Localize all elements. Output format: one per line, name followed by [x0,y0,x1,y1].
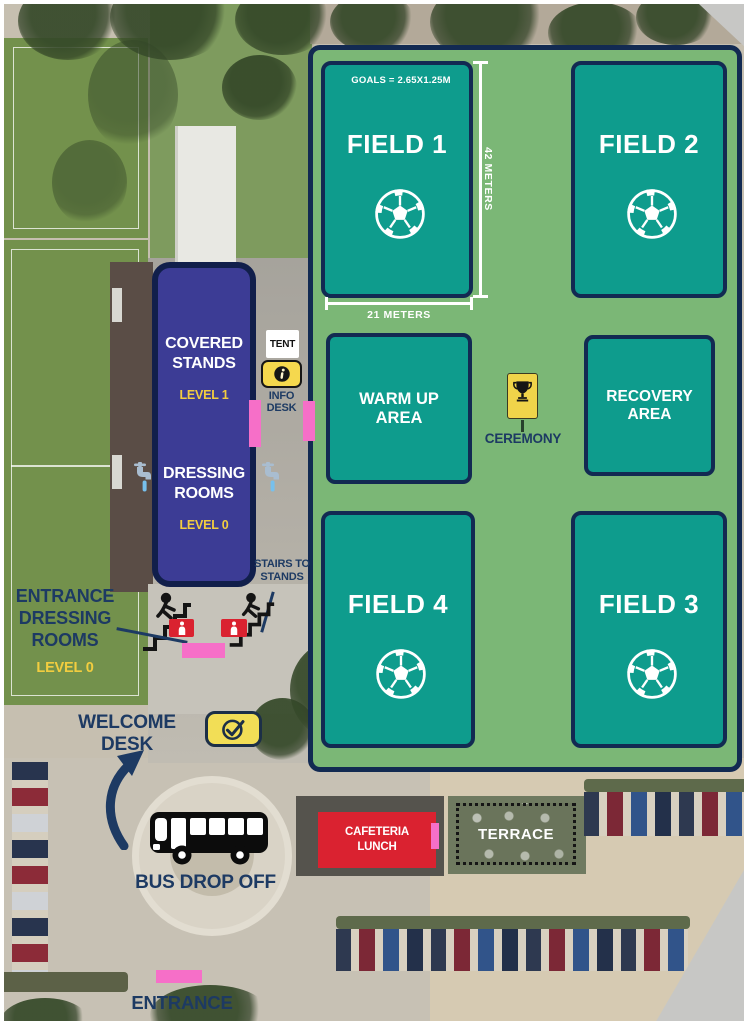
entrance-dressing-rooms-label: ENTRANCE DRESSING ROOMS [10,586,120,652]
hedge-bottom-left [0,972,128,992]
access-marker-entrance [156,970,202,983]
field-3: FIELD 3 [571,511,727,748]
width-dimension-line [325,302,473,305]
check-icon [220,716,248,742]
recovery-area-label: RECOVERY AREA [606,388,692,424]
bus-icon [147,806,272,868]
faucet-icon [256,461,282,495]
trophy-icon [512,379,533,403]
welcome-desk-marker [205,711,262,747]
info-desk-label: INFO DESK [257,390,306,414]
tree-shadow [52,140,127,225]
wc-person-icon [228,621,240,636]
wc-person-icon [176,621,188,636]
width-dimension-tick-right [470,297,473,310]
length-dimension-label: 42 METERS [480,134,494,224]
soccer-ball-icon [625,647,679,701]
venue-map: GOALS = 2.65X1.25M FIELD 1 FIELD 2 FIELD… [0,0,748,1025]
entrance-label: ENTRANCE [128,992,236,1014]
tree-canopy [222,55,297,120]
covered-stands-label: COVERED STANDS [157,334,251,374]
field-1: GOALS = 2.65X1.25M FIELD 1 [321,61,473,298]
goals-dimension-note: GOALS = 2.65X1.25M [335,75,467,86]
tent-label: TENT [270,339,295,350]
bleacher-steps [112,455,122,489]
soccer-ball-icon [373,187,427,241]
tent-marker: TENT [266,330,299,358]
covered-stands-level: LEVEL 1 [157,388,251,402]
field-2-label: FIELD 2 [575,129,723,160]
field-2: FIELD 2 [571,61,727,298]
entrance-dressing-level: LEVEL 0 [10,660,120,676]
length-dimension-tick-top [473,61,488,64]
dressing-rooms-label: DRESSING ROOMS [157,464,251,504]
field-3-label: FIELD 3 [575,589,723,620]
parked-cars-bottom [336,929,688,971]
access-marker-stands [249,400,261,447]
access-marker-fields [303,401,315,441]
soccer-ball-icon [374,647,428,701]
ceremony-label: CEREMONY [478,431,568,446]
field-4: FIELD 4 [321,511,475,748]
terrace-label: TERRACE [478,826,554,843]
stairs-to-stands-label: STAIRS TO STANDS [250,558,314,583]
parked-cars-left [12,762,48,980]
field-1-label: FIELD 1 [325,129,469,160]
warm-up-area-label: WARM UP AREA [359,390,439,428]
wc-marker [169,619,194,637]
bleacher-steps [112,288,122,322]
recovery-area: RECOVERY AREA [584,335,715,476]
hedge-right [584,779,748,792]
dressing-rooms-level: LEVEL 0 [157,518,251,532]
info-desk-marker [261,360,302,388]
terrace-marker: TERRACE [456,803,576,865]
length-dimension-tick-bottom [473,295,488,298]
cafeteria-label: CAFETERIA LUNCH [345,825,409,855]
ceremony-marker [507,373,538,419]
parked-cars-right [584,792,748,836]
cafeteria-marker: CAFETERIA LUNCH [318,812,436,868]
field-4-label: FIELD 4 [325,589,471,620]
warm-up-area: WARM UP AREA [326,333,472,484]
access-marker-dressing-entrance [182,643,225,658]
width-dimension-label: 21 METERS [357,309,441,321]
tree-shadow [88,40,178,150]
faucet-icon [128,461,154,495]
clubhouse-roof [175,126,236,262]
stands-building [152,262,256,587]
bus-drop-off-label: BUS DROP OFF [128,872,283,894]
access-marker-cafeteria [431,823,439,849]
width-dimension-tick-left [325,297,328,310]
soccer-ball-icon [625,187,679,241]
hedge-bottom [336,916,690,929]
wc-marker [221,619,247,637]
info-icon [273,365,291,383]
